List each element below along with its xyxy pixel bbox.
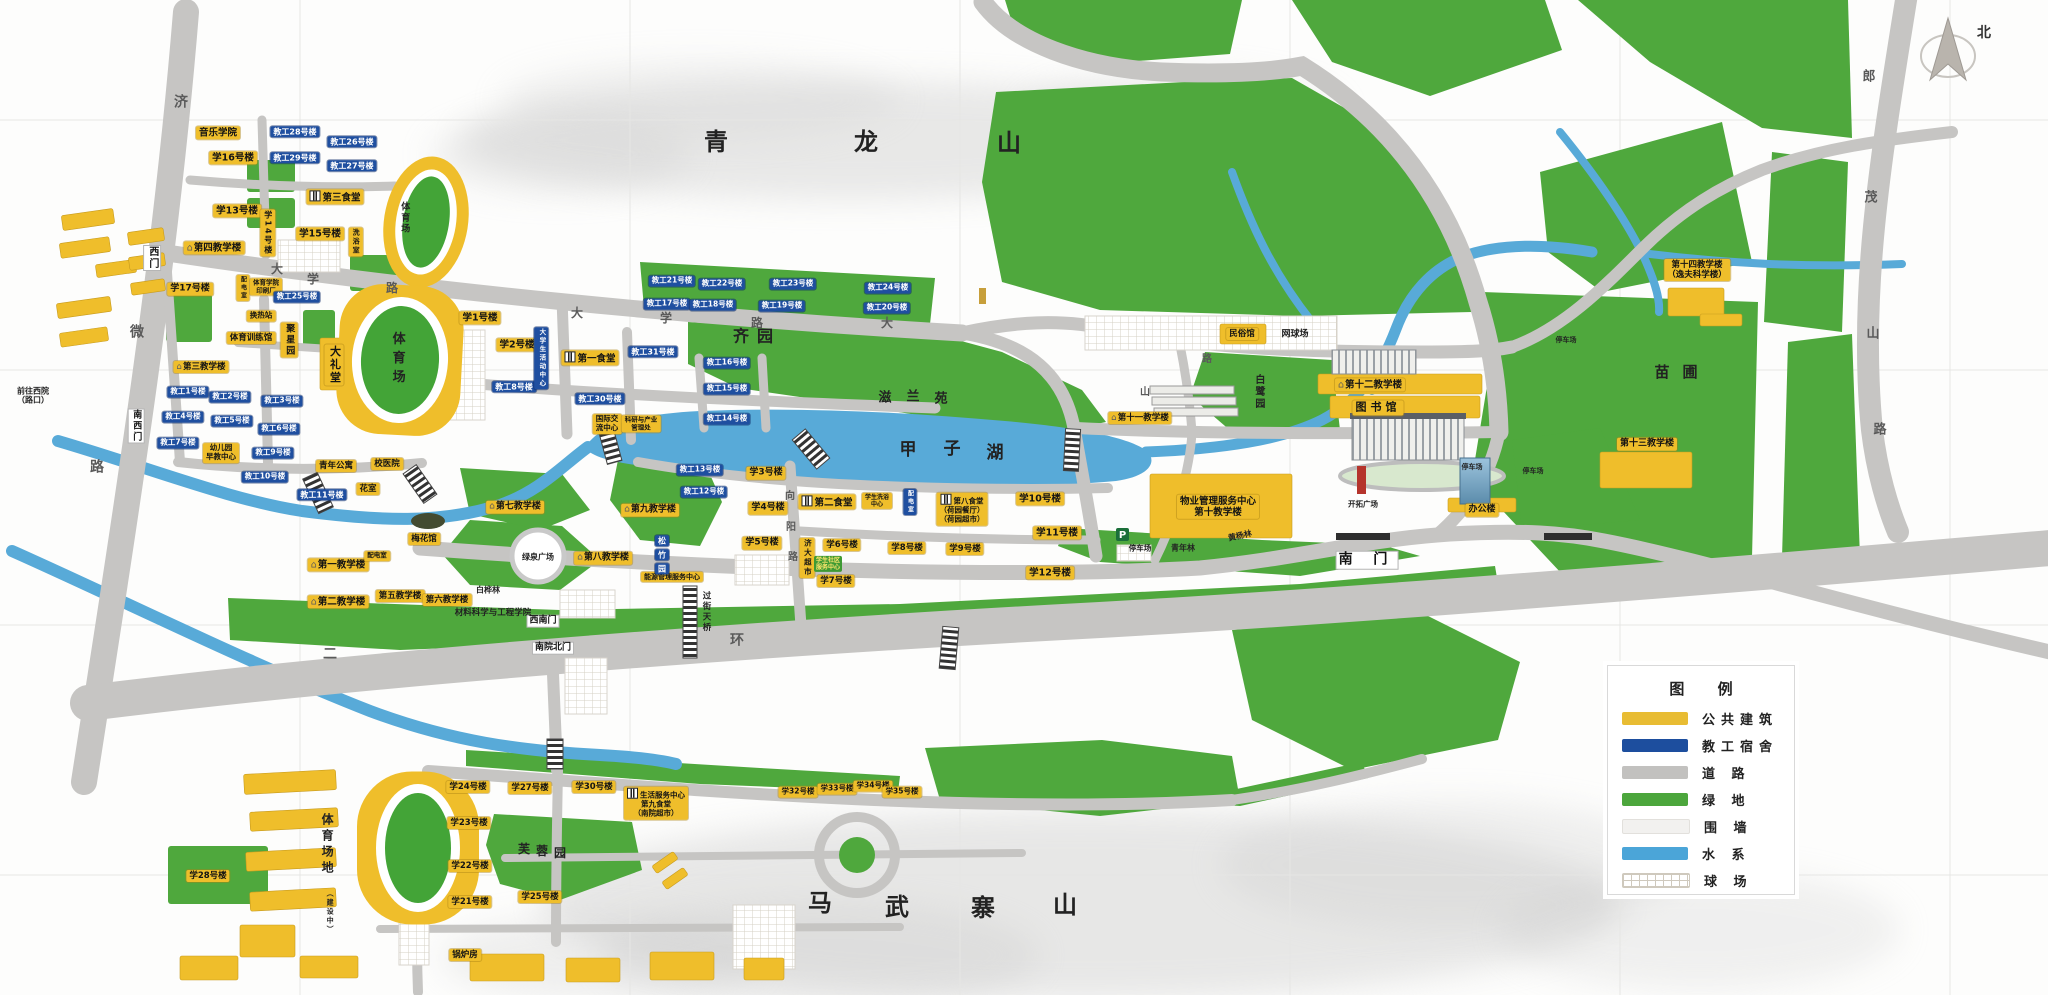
area-label-122: 山 xyxy=(997,129,1021,157)
building-label-7: 洗浴室 xyxy=(349,228,363,257)
building-label-16: 幼儿园 早教中心 xyxy=(203,443,239,463)
dining-icon xyxy=(627,788,638,799)
building-label-31: ⌂第七教学楼 xyxy=(486,501,544,514)
legend-title: 图 例 xyxy=(1608,666,1794,705)
gate-west: 西门 xyxy=(144,246,160,270)
dorm-label-89: 教工31号楼 xyxy=(628,346,677,357)
dining-icon xyxy=(309,190,320,201)
building-label-56: 第十三教学楼 xyxy=(1617,438,1677,451)
building-label-47: 学10号楼 xyxy=(1016,492,1064,505)
legend-item-3: 绿 地 xyxy=(1608,786,1794,813)
road-name-char-169: 山 xyxy=(1140,387,1150,399)
gate-south-campus-north: 南院北门 xyxy=(533,643,573,654)
legend-item-6: 球 场 xyxy=(1608,867,1794,894)
building-label-59: 学27号楼 xyxy=(508,782,551,794)
area-label-115: 兰 xyxy=(906,389,919,404)
property-center: 物业管理服务中心 第十教学楼 xyxy=(1177,495,1259,519)
area-label-139: 网球场 xyxy=(1281,330,1308,341)
building-label-13: 体育训练馆 xyxy=(227,332,276,344)
building-label-68: 学32号楼 xyxy=(779,787,818,798)
road-name-char-165: 郎 xyxy=(1862,69,1875,84)
gate-south: 南 门 xyxy=(1337,552,1398,569)
dorm-label-99: 教工15号楼 xyxy=(704,384,750,395)
campus-map: P 音乐学院学16号楼第三食堂学13号楼学14号楼学15号楼⌂第四教学楼洗浴室学… xyxy=(0,0,2048,995)
area-label-125: 寨 xyxy=(971,894,995,922)
building-label-27: 第五教学楼 xyxy=(376,590,425,602)
dorm-label-96: 教工19号楼 xyxy=(759,301,805,312)
dorm-label-79: 教工3号楼 xyxy=(261,396,302,407)
area-label-132: 白鹭园 xyxy=(1252,374,1264,410)
building-label-4: 学14号楼 xyxy=(260,209,275,256)
road-name-char-163: 二 xyxy=(323,647,337,664)
dorm-label-97: 教工20号楼 xyxy=(864,303,910,314)
building-label-48: 学11号楼 xyxy=(1033,526,1081,539)
building-label-29: 配电室 xyxy=(364,551,390,561)
area-label-119: 湖 xyxy=(987,443,1004,463)
dorm-label-86: 教工11号楼 xyxy=(297,489,346,500)
dorm-label-77: 教工1号楼 xyxy=(167,387,208,398)
area-label-116: 苑 xyxy=(934,391,947,406)
building-label-14: ⌂第三教学楼 xyxy=(174,361,229,373)
service-label-45: 学生社区 服务中心 xyxy=(814,556,842,572)
building-icon: ⌂ xyxy=(624,505,630,515)
building-label-28: 第六教学楼 xyxy=(423,594,472,606)
dorm-label-87: 教工8号楼 xyxy=(492,381,536,392)
map-legend: 图 例 公共建筑教工宿舍道 路绿 地围 墙水 系球 场 xyxy=(1607,665,1795,895)
legend-label: 教工宿舍 xyxy=(1702,736,1778,755)
dorm-label-105: 松 xyxy=(655,535,669,546)
road-name-char-150: 济 xyxy=(174,95,188,112)
building-label-36: 学4号楼 xyxy=(748,502,787,515)
building-label-58: 学24号楼 xyxy=(446,781,489,793)
area-label-148: 体育场地 xyxy=(320,813,334,877)
dorm-label-88: 教工30号楼 xyxy=(575,393,624,404)
dorm-label-90: 教工21号楼 xyxy=(649,276,695,287)
road-name-char-166: 茂 xyxy=(1864,190,1877,205)
compass-north-label: 北 xyxy=(1977,22,1991,42)
building-icon: ⌂ xyxy=(577,553,583,563)
building-label-8: 学17号楼 xyxy=(167,283,213,296)
legend-label: 水 系 xyxy=(1702,844,1751,863)
area-label-120: 青 xyxy=(704,128,728,156)
dining-icon xyxy=(564,351,575,362)
dorm-label-94: 教工17号楼 xyxy=(644,299,690,310)
building-label-44: 学7号楼 xyxy=(817,575,854,587)
building-icon: ⌂ xyxy=(177,362,182,372)
area-label-146: 体育场 xyxy=(399,202,410,235)
dining-hall-2: 第二食堂 xyxy=(798,494,855,509)
legend-label: 绿 地 xyxy=(1702,790,1751,809)
dorm-label-103: 大学生活动中心 xyxy=(534,327,548,389)
building-label-1: 学16号楼 xyxy=(209,151,257,164)
legend-swatch xyxy=(1622,712,1688,725)
dorm-label-100: 教工14号楼 xyxy=(704,414,750,425)
building-label-63: 学21号楼 xyxy=(448,896,491,908)
legend-swatch xyxy=(1622,739,1688,752)
building-label-66: 锅炉房 xyxy=(449,949,481,961)
library: 图书馆 xyxy=(1353,401,1404,416)
dorm-label-95: 教工18号楼 xyxy=(690,300,736,311)
area-label-133: 青年林 xyxy=(1171,543,1195,552)
area-label-135: 白桦林 xyxy=(476,585,500,594)
area-label-131: 园 xyxy=(554,846,566,860)
area-label-121: 龙 xyxy=(854,128,878,156)
road-name-char-160: 向 xyxy=(785,491,795,503)
area-label-114: 滋 xyxy=(878,390,891,405)
building-label-43: 学9号楼 xyxy=(946,543,983,555)
building-label-49: 学12号楼 xyxy=(1026,566,1074,579)
dorm-label-83: 教工7号楼 xyxy=(157,438,198,449)
building-label-23: 国际交 流中心 xyxy=(593,414,622,434)
area-label-123: 马 xyxy=(808,889,832,917)
road-name-char-151: 微 xyxy=(130,325,144,342)
building-label-62: 学22号楼 xyxy=(448,860,491,872)
building-label-60: 学30号楼 xyxy=(572,781,615,793)
area-label-134: 黄杨林 xyxy=(1227,529,1252,543)
dorm-label-75: 教工27号楼 xyxy=(327,160,376,171)
road-name-char-170: 路 xyxy=(1202,354,1212,366)
area-label-137: 材料科学与工程学院 xyxy=(455,608,532,618)
dining-icon xyxy=(941,494,952,505)
legend-label: 球 场 xyxy=(1704,871,1753,890)
building-label-15: 大礼堂 xyxy=(325,345,344,386)
area-label-149: （建设中） xyxy=(326,890,334,935)
area-label-147: 体育场 xyxy=(389,332,404,389)
road-name-char-159: 大 xyxy=(881,316,893,330)
gate-southwest: 西南门 xyxy=(527,616,558,627)
building-label-34: 能源管理服务中心 xyxy=(641,572,703,582)
area-label-127: 苗 xyxy=(1654,364,1669,382)
building-label-6: ⌂第四教学楼 xyxy=(184,241,245,254)
building-icon: ⌂ xyxy=(1338,379,1344,390)
dorm-label-102: 教工12号楼 xyxy=(681,487,727,498)
building-label-11: 换热站 xyxy=(247,311,276,322)
dining-icon xyxy=(801,495,812,506)
building-label-24: 科研与产业 管理处 xyxy=(622,415,661,432)
dining-hall-8: 第八食堂 （荷园餐厅） （荷园超市） xyxy=(937,493,988,526)
road-name-char-156: 大 xyxy=(571,306,583,320)
area-label-144: 停车场 xyxy=(1129,545,1152,554)
building-label-51: 民俗馆 xyxy=(1226,328,1258,340)
area-label-129: 芙 xyxy=(518,842,530,856)
building-label-69: 学33号楼 xyxy=(818,784,857,795)
building-label-26: ⌂第二教学楼 xyxy=(308,595,369,608)
building-label-39: 学生洗浴 中心 xyxy=(862,493,892,509)
road-name-char-154: 学 xyxy=(307,272,319,286)
building-icon: ⌂ xyxy=(489,502,495,512)
building-label-3: 学13号楼 xyxy=(213,204,261,217)
building-label-40: 济大超市 xyxy=(800,538,815,578)
compass: 北 xyxy=(1893,6,2013,116)
dining-hall-1: 第一食堂 xyxy=(561,350,618,365)
building-label-18: 校医院 xyxy=(371,458,403,470)
building-label-19: 花室 xyxy=(356,483,379,495)
area-label-141: 停车场 xyxy=(1462,463,1483,471)
building-label-20: 学1号楼 xyxy=(459,311,500,324)
music-college: 音乐学院 xyxy=(196,126,240,139)
area-label-145: 前往西院 （路口） xyxy=(17,387,49,406)
road-name-char-164: 环 xyxy=(730,633,744,650)
area-label-138: 开拓广场 xyxy=(1348,501,1378,510)
building-label-42: 学8号楼 xyxy=(888,542,925,554)
area-label-117: 甲 xyxy=(900,440,917,460)
dorm-label-93: 教工24号楼 xyxy=(865,283,911,294)
road-name-char-152: 路 xyxy=(90,460,104,477)
building-label-61: 学23号楼 xyxy=(447,817,490,829)
building-label-52: ⌂第十一教学楼 xyxy=(1108,412,1171,424)
legend-item-4: 围 墙 xyxy=(1608,813,1794,840)
building-icon: ⌂ xyxy=(187,242,193,253)
road-name-char-153: 大 xyxy=(271,262,283,276)
dining-hall-3: 第三食堂 xyxy=(306,189,363,204)
dorm-label-80: 教工4号楼 xyxy=(162,412,203,423)
dorm-label-76: 教工25号楼 xyxy=(274,292,320,303)
building-label-12: 聚星园 xyxy=(281,323,298,358)
area-label-113: 齐园 xyxy=(733,328,781,347)
legend-swatch xyxy=(1622,766,1688,779)
building-label-25: ⌂第一教学楼 xyxy=(308,558,369,571)
area-label-136: 绿泉广场 xyxy=(522,552,554,561)
building-icon: ⌂ xyxy=(311,596,317,607)
legend-item-0: 公共建筑 xyxy=(1608,705,1794,732)
legend-item-5: 水 系 xyxy=(1608,840,1794,867)
building-label-64: 学25号楼 xyxy=(518,891,561,903)
building-label-37: 学5号楼 xyxy=(742,537,781,550)
building-label-35: 学3号楼 xyxy=(746,467,785,480)
dorm-label-81: 教工5号楼 xyxy=(211,416,252,427)
area-label-126: 山 xyxy=(1053,891,1077,919)
road-name-char-158: 路 xyxy=(751,316,763,330)
building-label-21: 学2号楼 xyxy=(496,338,537,351)
dorm-label-98: 教工16号楼 xyxy=(704,358,750,369)
building-label-17: 青年公寓 xyxy=(316,460,356,472)
legend-item-2: 道 路 xyxy=(1608,759,1794,786)
building-label-9: 配电室 xyxy=(236,275,249,301)
dorm-label-91: 教工22号楼 xyxy=(699,279,745,290)
dorm-label-73: 教工26号楼 xyxy=(327,136,376,147)
building-icon: ⌂ xyxy=(1111,413,1116,423)
road-name-char-161: 阳 xyxy=(786,522,796,534)
dorm-label-72: 教工28号楼 xyxy=(270,126,319,137)
legend-label: 围 墙 xyxy=(1704,817,1753,836)
area-label-130: 蓉 xyxy=(536,844,548,858)
dorm-label-101: 教工13号楼 xyxy=(677,465,723,476)
dorm-label-104: 配电室 xyxy=(903,489,916,515)
building-label-57: 第十四教学楼 （逸夫科学楼） xyxy=(1664,259,1730,281)
dorm-label-84: 教工9号楼 xyxy=(252,448,293,459)
building-label-53: ⌂第十二教学楼 xyxy=(1335,378,1405,391)
road-name-char-162: 路 xyxy=(788,552,798,564)
road-name-char-168: 路 xyxy=(1873,422,1886,437)
dorm-label-85: 教工10号楼 xyxy=(242,472,288,483)
building-label-71: 学35号楼 xyxy=(883,787,922,798)
area-label-140: 过街天桥 xyxy=(701,591,711,633)
legend-item-1: 教工宿舍 xyxy=(1608,732,1794,759)
legend-swatch xyxy=(1622,819,1690,834)
legend-swatch xyxy=(1622,847,1688,860)
road-name-char-155: 路 xyxy=(386,281,398,295)
dorm-label-92: 教工23号楼 xyxy=(770,279,816,290)
dorm-label-82: 教工6号楼 xyxy=(258,424,299,435)
area-label-143: 停车场 xyxy=(1556,336,1577,344)
area-label-124: 武 xyxy=(885,893,909,921)
building-label-65: 学28号楼 xyxy=(186,870,229,882)
building-label-5: 学15号楼 xyxy=(296,227,344,240)
legend-label: 道 路 xyxy=(1702,763,1751,782)
legend-label: 公共建筑 xyxy=(1702,709,1778,728)
office-building: 办公楼 xyxy=(1465,504,1498,517)
area-label-118: 子 xyxy=(944,439,961,459)
dorm-label-78: 教工2号楼 xyxy=(209,392,250,403)
building-label-41: 学6号楼 xyxy=(823,539,860,551)
gate-southwest-outer: 南西门 xyxy=(129,410,144,443)
building-label-32: ⌂第八教学楼 xyxy=(574,552,632,565)
legend-swatch xyxy=(1622,873,1690,888)
dining-hall-9: 生活服务中心 第九食堂 （南院超市） xyxy=(624,787,688,820)
legend-swatch xyxy=(1622,793,1688,806)
area-label-128: 圃 xyxy=(1682,364,1697,382)
road-name-char-157: 学 xyxy=(660,311,672,325)
dorm-label-74: 教工29号楼 xyxy=(270,152,319,163)
dorm-label-107: 园 xyxy=(655,563,669,574)
road-name-char-167: 山 xyxy=(1866,326,1879,341)
area-label-142: 停车场 xyxy=(1523,467,1544,475)
building-label-30: 梅花馆 xyxy=(408,533,440,545)
compass-rose-icon xyxy=(1893,6,2013,116)
dorm-label-106: 竹 xyxy=(655,549,669,560)
building-label-33: ⌂第九教学楼 xyxy=(621,504,679,517)
building-icon: ⌂ xyxy=(311,559,317,570)
